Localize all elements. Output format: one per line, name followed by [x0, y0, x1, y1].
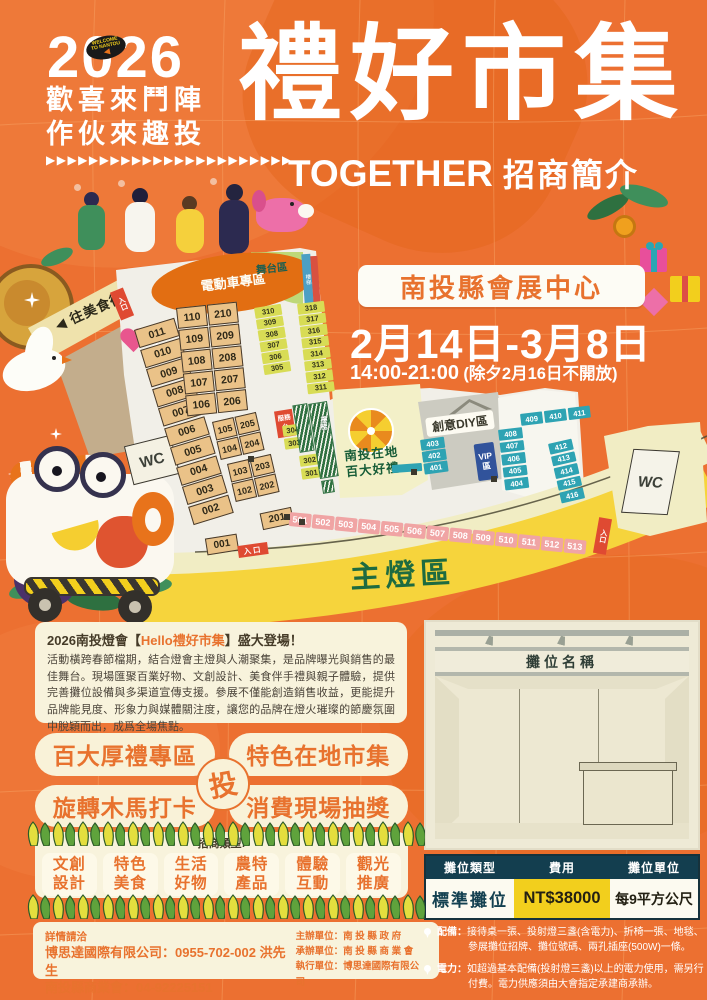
category-card: 特色美食: [103, 853, 158, 896]
hours-note: (除夕2月16日不開放): [463, 365, 617, 383]
stairs-label: 樓梯: [318, 416, 328, 435]
main-title: 禮好市集: [238, 20, 703, 130]
stage-stairs-label: 樓梯: [303, 273, 312, 285]
door-marker: [491, 476, 497, 482]
booth-cell: 408: [498, 427, 523, 440]
price-table: 攤位類型費用攤位單位 標準攤位 NT$38000 每9平方公尺: [424, 854, 700, 920]
pin-icon: [424, 965, 431, 972]
contact-line1: 博思達國際有限公司：0955-702-002 洪先生: [45, 944, 296, 979]
categories-box: 招商類型: 文創設計 特色美食 生活好物 農特產品 體驗互動 觀光推廣: [35, 832, 408, 898]
organizers: 主辦單位：南 投 縣 政 府 承辦單位：南 投 縣 商 業 會 執行單位：博思達…: [296, 929, 427, 973]
price-table-header-cell: 費用: [514, 856, 610, 879]
booth-cell: 207: [214, 367, 246, 391]
raised-hand: [74, 184, 81, 191]
booth-cell: 506: [403, 523, 426, 538]
booth-note: 配備：接待桌一張、投射燈三盞(含電力)、折椅一張、地毯、參展攤位招牌、攤位號碼、…: [424, 925, 704, 955]
person-head: [226, 184, 243, 201]
category-card: 體驗互動: [285, 853, 340, 896]
booth-note: 電力：如超過基本配備(投射燈三盞)以上的電力使用，需另行付費。電力供應須由大會指…: [424, 962, 704, 992]
door-marker: [411, 469, 417, 475]
feature-badge: 旋轉木馬打卡: [35, 785, 215, 828]
stairs-block: [321, 479, 335, 494]
booth-wall-left: [435, 676, 459, 839]
booth-cell: 513: [563, 538, 586, 553]
spotlight-icon: [557, 635, 567, 646]
booth-cell: 109: [178, 327, 210, 351]
booth-cell: 512: [541, 536, 564, 551]
booth-panel-line: [519, 689, 521, 823]
spotlight-icon: [485, 635, 495, 646]
door-marker: [248, 456, 254, 462]
category-card: 農特產品: [224, 853, 279, 896]
booth-diagram: 攤位名稱: [424, 620, 700, 850]
person-head: [132, 188, 148, 204]
slogan-line2: 作伙來趣投: [46, 112, 206, 151]
horse-mane: [252, 190, 266, 212]
subtitle-en: TOGETHER: [288, 153, 493, 195]
flower-icon: [613, 215, 636, 238]
price-table-header: 攤位類型費用攤位單位: [426, 856, 698, 879]
intro-body: 活動橫跨春節檔期，結合燈會主燈與人潮聚集，是品牌曝光與銷售的最佳舞台。現場匯聚百…: [47, 652, 395, 736]
booth-cell: 110: [176, 305, 208, 329]
organizer-host: 主辦單位：南 投 縣 政 府: [296, 929, 427, 944]
booth-cell: 107: [183, 371, 215, 395]
booth-cell: 507: [426, 525, 449, 540]
feature-badge: 消費現場抽獎: [229, 785, 409, 828]
door-marker: [299, 519, 305, 525]
booth-notes: 配備：接待桌一張、投射燈三盞(含電力)、折椅一張、地毯、參展攤位招牌、攤位號碼、…: [424, 925, 704, 999]
booth-ceiling: [435, 676, 689, 689]
subtitle: TOGETHER 招商簡介: [288, 150, 639, 196]
person-head: [182, 196, 197, 211]
booth-cell: 108: [181, 349, 213, 373]
booth-type: 標準攤位: [426, 879, 514, 918]
price-table-row: 標準攤位 NT$38000 每9平方公尺: [426, 879, 698, 918]
feature-badge: 特色在地市集: [229, 733, 409, 776]
booth-cell: 502: [312, 514, 335, 529]
contact-left: 詳情請洽 博思達國際有限公司：0955-702-002 洪先生 南投縣商業會：0…: [45, 929, 296, 973]
event-hours: 14:00-21:00 (除夕2月16日不開放): [350, 360, 617, 385]
booth-cell: 209: [209, 324, 241, 348]
booth-price: NT$38000: [514, 879, 610, 918]
organizer-exec: 執行單位：博思達國際有限公司: [296, 959, 427, 989]
intro-title-highlight: Hello禮好市集: [141, 633, 225, 648]
door-marker: [284, 514, 290, 520]
horse-snout: [298, 204, 314, 218]
booth-cell: 508: [449, 527, 472, 542]
booth-column-403: 403402401: [420, 437, 449, 475]
feature-badge: 百大厚禮專區: [35, 733, 215, 776]
booth-cell: 405: [503, 464, 528, 477]
local-goods-label: 南投在地 百大好禮: [337, 443, 408, 481]
intro-box: 2026南投燈會【Hello禮好市集】盛大登場！ 活動橫跨春節檔期，結合燈會主燈…: [35, 622, 407, 723]
arrow-row: ▶▶▶▶▶▶▶▶▶▶▶▶▶▶▶▶▶▶▶▶▶▶▶: [46, 153, 293, 167]
contact-line2: 南投縣商業會：04-92225151: [45, 979, 296, 997]
hours: 14:00-21:00: [350, 362, 459, 384]
left-arrow-icon: ◀: [103, 49, 110, 57]
contact-heading: 詳情請洽: [45, 929, 296, 944]
booth-room: [435, 676, 689, 839]
raised-hand: [210, 178, 217, 185]
categories-row: 文創設計 特色美食 生活好物 農特產品 體驗互動 觀光推廣: [42, 853, 401, 896]
carousel-horse: [256, 198, 308, 232]
booth-cell: 503: [334, 516, 357, 531]
booth-cell: 106: [185, 392, 217, 416]
category-card: 觀光推廣: [346, 853, 401, 896]
intro-title: 2026南投燈會【Hello禮好市集】盛大登場！: [47, 630, 395, 649]
spotlight-icon: [625, 635, 635, 646]
booth-cell: 406: [501, 452, 526, 465]
main-lantern-label: 主燈區: [349, 547, 456, 596]
categories-heading: 招商類型:: [42, 835, 401, 851]
price-table-header-cell: 攤位單位: [610, 856, 698, 879]
booth-cell: 510: [495, 532, 518, 547]
reception-desk: [583, 767, 673, 825]
booth-cell: 206: [216, 389, 248, 413]
booth-truss: [435, 630, 689, 636]
booth-cell: 407: [500, 439, 525, 452]
booth-unit: 每9平方公尺: [610, 879, 698, 918]
category-card: 生活好物: [164, 853, 219, 896]
category-card: 文創設計: [42, 853, 97, 896]
booth-cell: 504: [357, 519, 380, 534]
booth-cell: 511: [518, 534, 541, 549]
booth-cell: 505: [380, 521, 403, 536]
price-table-header-cell: 攤位類型: [426, 856, 514, 879]
booth-cell: 509: [472, 530, 495, 545]
horse-eye: [290, 202, 294, 206]
subtitle-zh: 招商簡介: [503, 150, 639, 196]
booth-sign: 攤位名稱: [435, 647, 689, 676]
organizer-co: 承辦單位：南 投 縣 商 業 會: [296, 944, 427, 959]
venue-name: 南投縣會展中心: [358, 265, 645, 307]
booth-floor: [435, 823, 689, 839]
booth-grid-100s: 110210109209108208107207106206: [176, 302, 248, 417]
person-head: [84, 192, 99, 207]
pin-icon: [424, 928, 431, 935]
booth-cell: 208: [211, 345, 243, 369]
booth-cell: 210: [207, 302, 239, 326]
poster: 2026 WELCOME TO NANTOU ◀ 歡喜來鬥陣 作伙來趣投 ▶▶▶…: [0, 0, 707, 1000]
raised-hand: [118, 180, 125, 187]
contact-box: 詳情請洽 博思達國際有限公司：0955-702-002 洪先生 南投縣商業會：0…: [33, 922, 439, 979]
